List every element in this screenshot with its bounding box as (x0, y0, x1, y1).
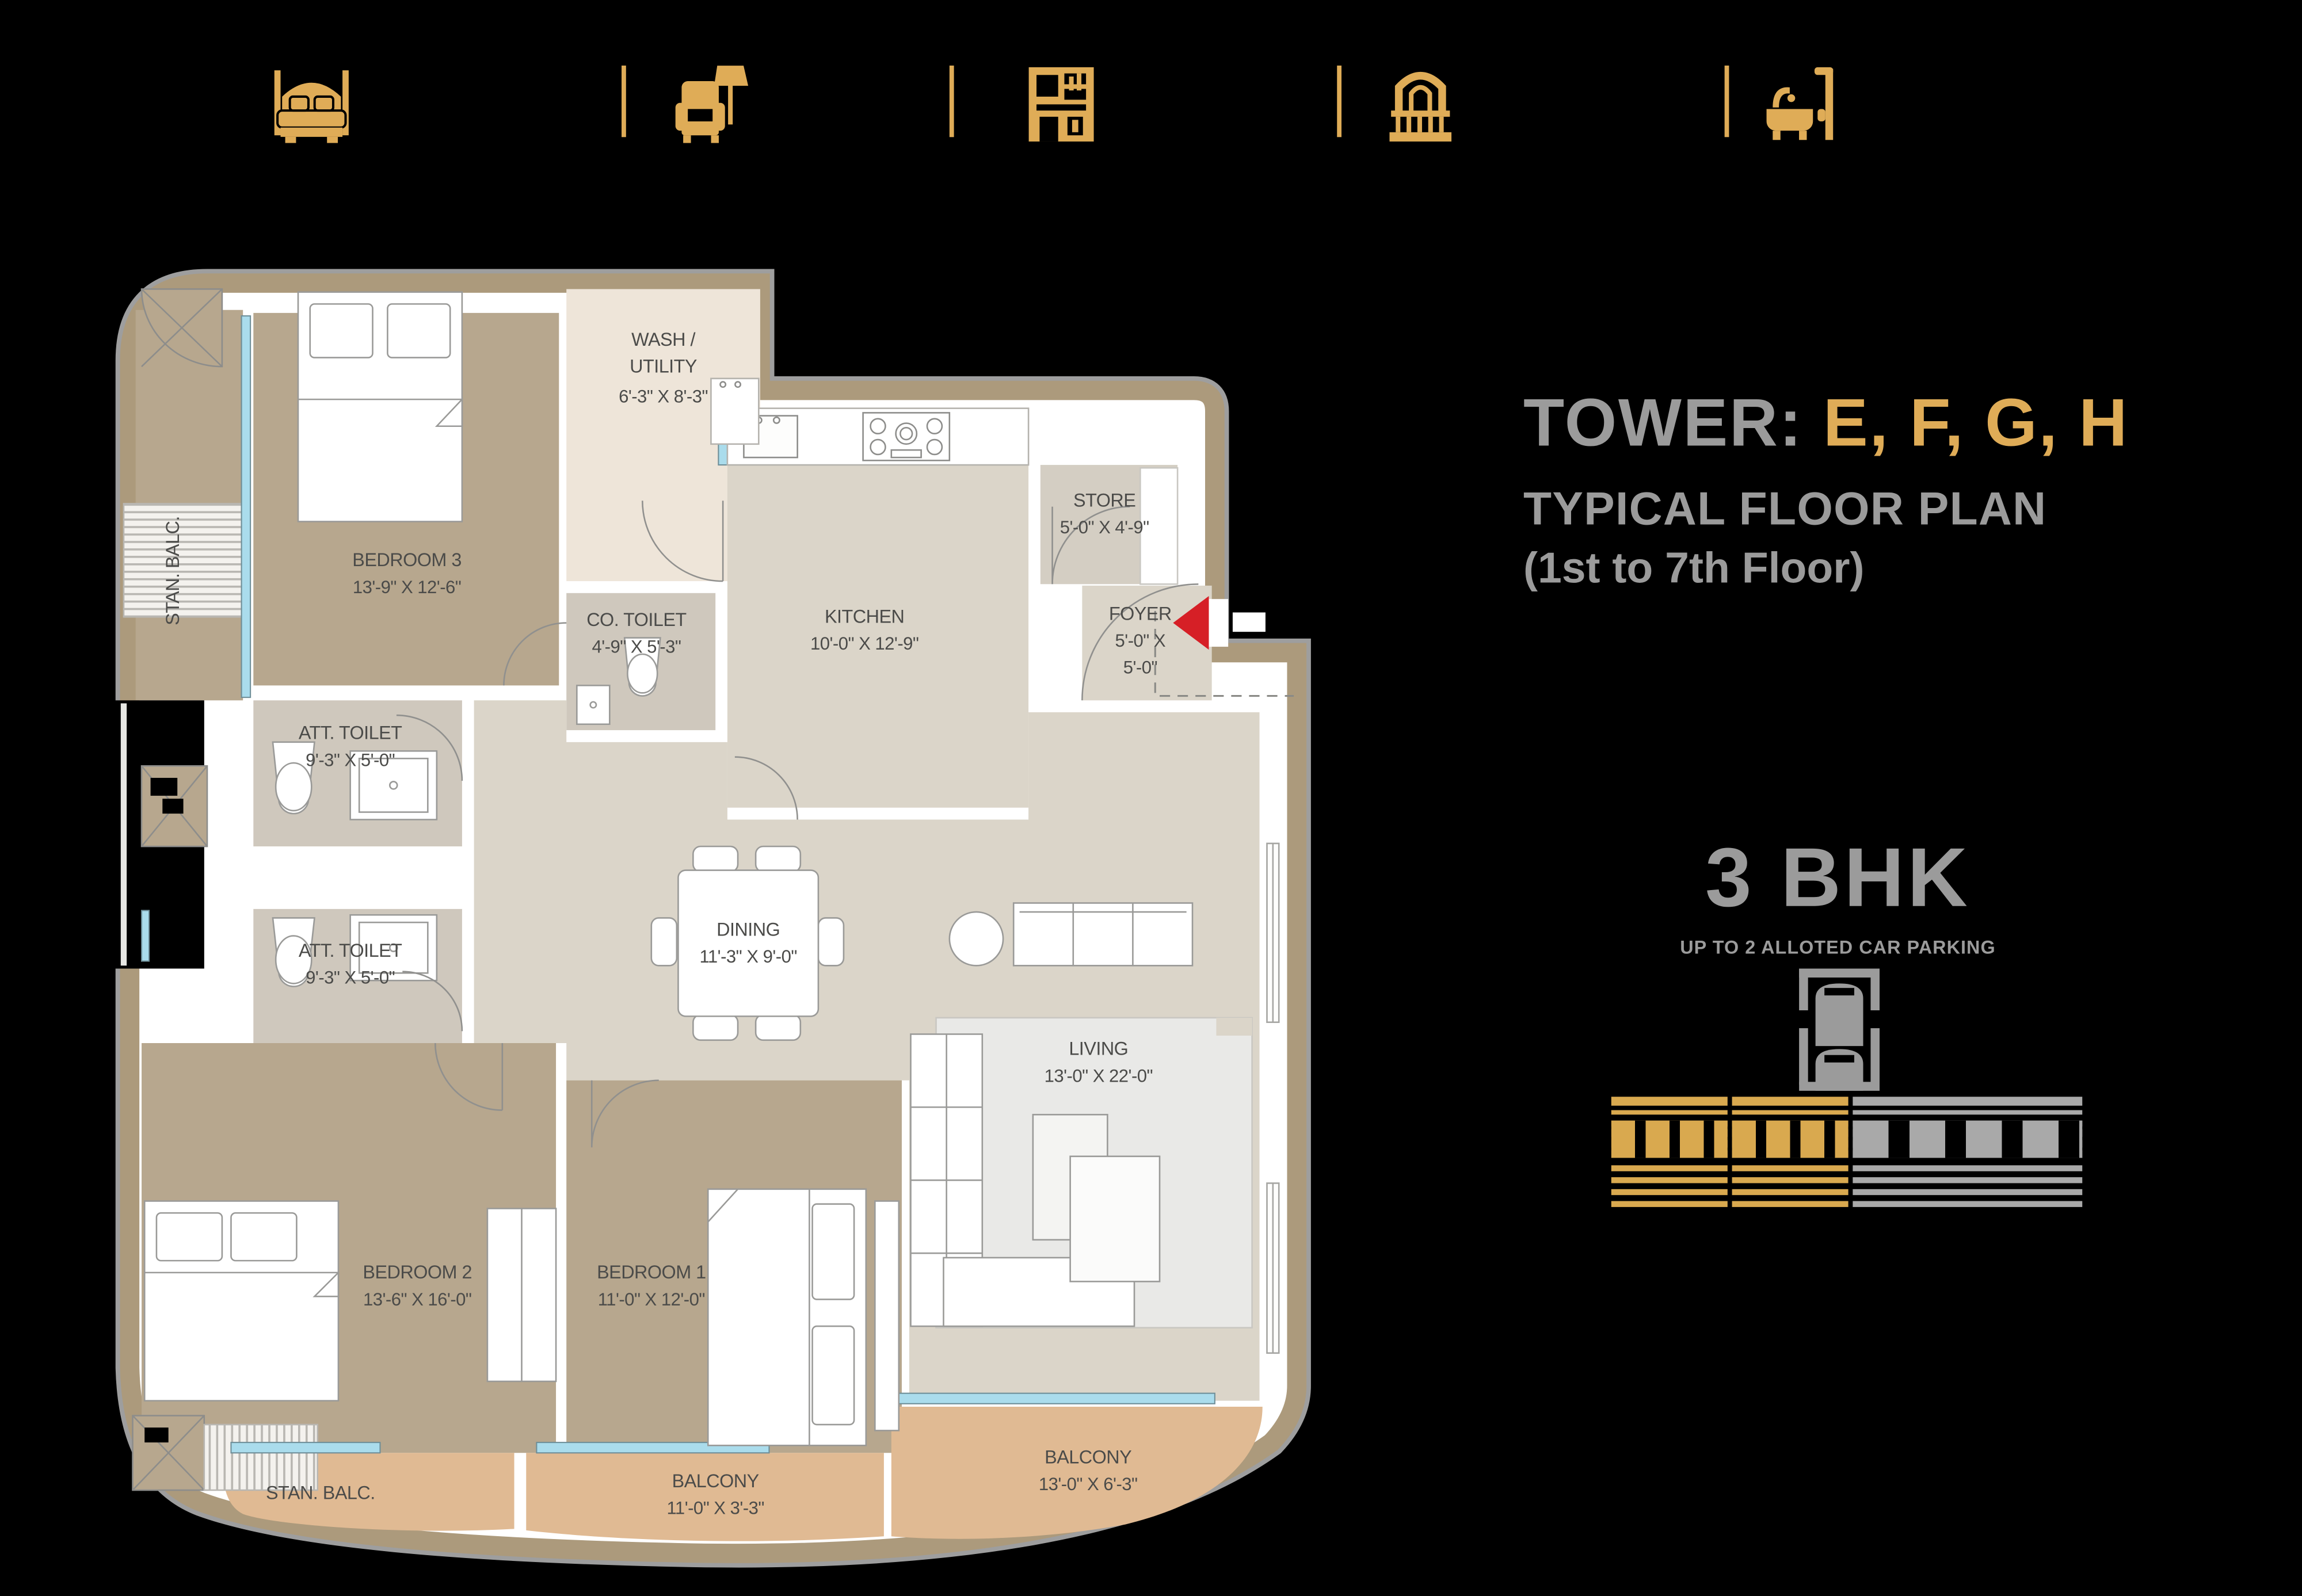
stan-balc-bottom-label: STAN. BALC. (266, 1483, 375, 1503)
bedroom1-bed (708, 1189, 866, 1445)
rug-notch (1216, 1018, 1252, 1036)
unit-block: 3 BHK UP TO 2 ALLOTED CAR PARKING (1587, 828, 2088, 958)
att-toilet2-dims: 9'-3" X 5'-0" (306, 967, 395, 987)
att-toilet1-dims: 9'-3" X 5'-0" (306, 750, 395, 770)
floor-plan-svg: BEDROOM 3 13'-9" X 12'-6" WASH / UTILITY… (112, 265, 1352, 1589)
foyer-label: FOYER (1109, 603, 1172, 624)
balcony1-floor (526, 1453, 884, 1541)
balcony2-dims: 13'-0" X 6'-3" (1039, 1474, 1138, 1494)
header-separator (622, 66, 626, 137)
window-living (899, 1393, 1215, 1404)
header-separator (1337, 66, 1341, 137)
tower-column-gold (1611, 1097, 1728, 1211)
dining-label: DINING (716, 919, 780, 940)
wash-label-2: UTILITY (630, 356, 697, 377)
kitchen-cabinet-icon (1021, 63, 1102, 143)
living-label: LIVING (1069, 1038, 1128, 1059)
balcony1-dims: 11'-0" X 3'-3" (666, 1498, 764, 1518)
dining-table (678, 870, 818, 1017)
foyer-dims-1: 5'-0" X (1115, 631, 1166, 651)
side-table (950, 912, 1003, 965)
bedroom2-wardrobe (487, 1208, 556, 1381)
living-dims: 13'-0" X 22'-0" (1045, 1066, 1153, 1086)
window-left (142, 910, 149, 961)
louver-hatch-bottom (204, 1425, 318, 1490)
page: TOWER: E, F, G, H TYPICAL FLOOR PLAN (1s… (0, 0, 2302, 1589)
kitchen-dims: 10'-0" X 12'-9" (810, 633, 918, 654)
store-dims: 5'-0" X 4'-9" (1060, 517, 1149, 537)
tower-names: E, F, G, H (1823, 384, 2129, 460)
dining-set (651, 846, 844, 1040)
foyer-dims-2: 5'-0" (1123, 658, 1157, 678)
floor-plan: BEDROOM 3 13'-9" X 12'-6" WASH / UTILITY… (112, 265, 1352, 1589)
header-separator (1725, 66, 1729, 137)
wash-dims: 6'-3" X 8'-3" (619, 386, 708, 406)
unit-parking-note: UP TO 2 ALLOTED CAR PARKING (1587, 937, 2088, 958)
balcony-arch-icon (1380, 63, 1461, 143)
towers-elevation-graphic (1611, 1097, 2082, 1211)
bedroom3-label: BEDROOM 3 (352, 549, 462, 570)
bedroom1-wardrobe (875, 1201, 898, 1431)
tower-column-gold (1732, 1097, 1849, 1211)
co-toilet-dims: 4'-9" X 5'-3" (592, 636, 681, 656)
balcony1-label: BALCONY (672, 1471, 759, 1491)
co-toilet-label: CO. TOILET (586, 609, 687, 630)
utility-sink (711, 379, 759, 444)
bed-icon (271, 63, 352, 143)
window-bedroom2 (231, 1442, 380, 1453)
tower-title: TOWER: E, F, G, H (1523, 384, 2129, 462)
title-block: TOWER: E, F, G, H TYPICAL FLOOR PLAN (1s… (1523, 384, 2129, 594)
wash-label-1: WASH / (631, 329, 695, 350)
bedroom1-dims: 11'-0" X 12'-0" (598, 1289, 705, 1309)
kitchen-label: KITCHEN (825, 606, 904, 627)
car-parking-icon (1794, 965, 1884, 1094)
balcony2-floor (891, 1407, 1263, 1539)
entry-stub (1233, 612, 1266, 632)
store-label: STORE (1073, 490, 1135, 511)
tv-unit (1013, 903, 1192, 966)
bedroom3-dims: 13'-9" X 12'-6" (353, 577, 461, 597)
bedroom2-dims: 13'-6" X 16'-0" (363, 1289, 471, 1309)
att-toilet2-label: ATT. TOILET (299, 940, 402, 961)
tower-label: TOWER: (1523, 384, 1803, 460)
unit-type: 3 BHK (1587, 828, 2088, 925)
bedroom2-bed (144, 1201, 338, 1401)
stan-balc-left-label: STAN. BALC. (162, 516, 183, 625)
balcony2-label: BALCONY (1045, 1446, 1131, 1467)
tower-column-gray (1853, 1097, 2082, 1211)
kitchen-hob (863, 413, 950, 460)
window-stan-balc (242, 316, 251, 697)
bath-icon (1760, 63, 1841, 143)
bedroom3-bed (298, 292, 462, 522)
armchair-lamp-icon (669, 63, 750, 143)
plan-subtitle: TYPICAL FLOOR PLAN (1523, 483, 2129, 536)
dining-dims: 11'-3" X 9'-0" (699, 946, 796, 967)
att-toilet1-label: ATT. TOILET (299, 723, 402, 743)
bedroom1-label: BEDROOM 1 (597, 1262, 706, 1282)
plan-floors: (1st to 7th Floor) (1523, 545, 2129, 594)
header-separator (950, 66, 954, 137)
bedroom2-label: BEDROOM 2 (363, 1262, 472, 1282)
stairs-hatch-left (124, 503, 246, 617)
